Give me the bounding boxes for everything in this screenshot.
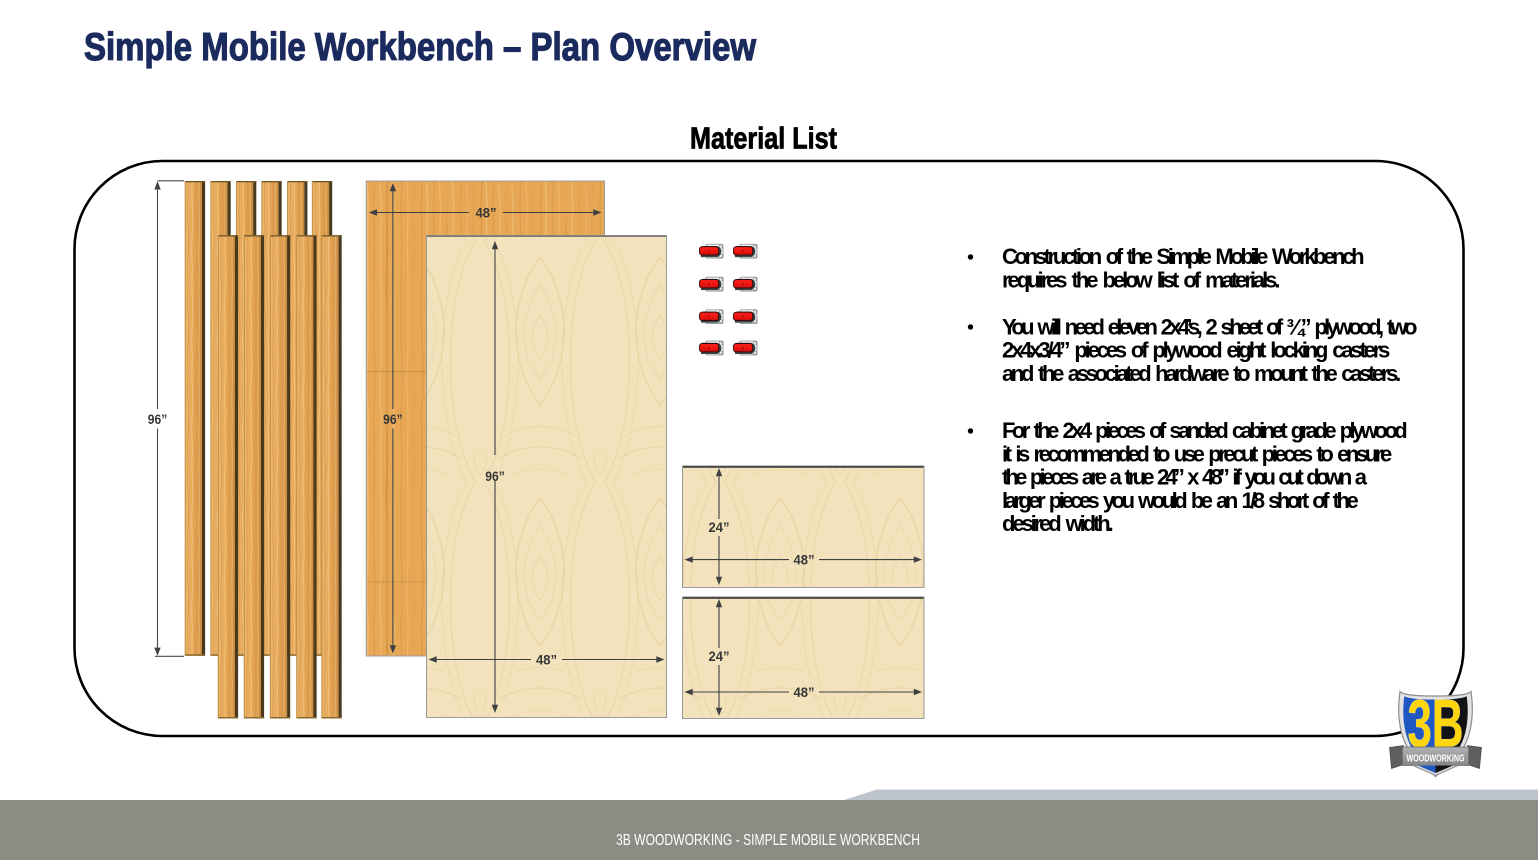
svg-text:48”: 48”: [476, 205, 497, 220]
svg-text:96”: 96”: [148, 412, 168, 427]
svg-text:2x4x3/4” pieces of plywood eig: 2x4x3/4” pieces of plywood eight locking…: [1002, 338, 1390, 363]
svg-text:and the associated hardware to: and the associated hardware to mount the…: [1002, 361, 1401, 386]
svg-text:24”: 24”: [709, 649, 730, 664]
svg-text:48”: 48”: [794, 685, 815, 700]
svg-text:larger pieces you would be an: larger pieces you would be an 1/8 short …: [1002, 488, 1359, 513]
svg-text:For the 2x4 pieces of sanded c: For the 2x4 pieces of sanded cabinet gra…: [1002, 418, 1408, 443]
svg-text:Construction of the Simple Mob: Construction of the Simple Mobile Workbe…: [1002, 244, 1365, 269]
svg-text:it is recommended to use precu: it is recommended to use precut pieces t…: [1002, 441, 1392, 466]
svg-text:desired width.: desired width.: [1002, 511, 1114, 536]
svg-text:96”: 96”: [485, 469, 505, 484]
svg-text:Material List: Material List: [690, 121, 837, 156]
svg-text:48”: 48”: [794, 552, 815, 567]
svg-text:requires the below list of mat: requires the below list of materials.: [1002, 267, 1281, 292]
svg-text:WOODWORKING: WOODWORKING: [1407, 754, 1465, 765]
svg-text:You will need eleven 2x4’s, 2: You will need eleven 2x4’s, 2 sheet of ¾…: [1002, 314, 1417, 339]
svg-text:96”: 96”: [383, 412, 403, 427]
svg-text:48”: 48”: [536, 652, 557, 667]
svg-text:Simple Mobile Workbench – Plan: Simple Mobile Workbench – Plan Overview: [84, 26, 757, 69]
svg-text:the pieces are a true 24” x 48: the pieces are a true 24” x 48” if you c…: [1002, 465, 1368, 490]
svg-text:3B WOODWORKING - SIMPLE MOBILE: 3B WOODWORKING - SIMPLE MOBILE WORKBENCH: [616, 832, 920, 849]
svg-text:24”: 24”: [709, 520, 730, 535]
